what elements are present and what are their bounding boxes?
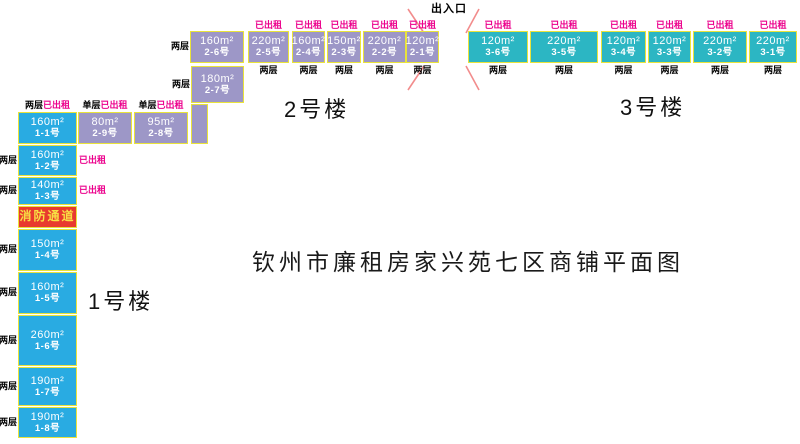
unit-area: 160m² <box>31 281 65 293</box>
floors-label: 单层 <box>138 100 156 110</box>
unit-area: 120m² <box>481 35 515 47</box>
floors-label: 两层 <box>259 65 277 76</box>
unit-number: 2-6号 <box>204 48 229 58</box>
fire-passage-box: 消防通道 <box>18 206 77 228</box>
floors-label: 两层 <box>375 65 393 76</box>
unit-box-2-9: 80m²2-9号 <box>78 112 132 144</box>
floors-label: 两层 <box>660 65 678 76</box>
unit-number: 1-8号 <box>35 424 60 434</box>
unit-box-3-4: 120m²3-4号 <box>601 31 646 63</box>
rented-label: 已出租 <box>371 20 398 31</box>
unit-number: 2-8号 <box>148 129 173 139</box>
unit-number: 1-4号 <box>35 251 60 261</box>
unit-area: 150m² <box>31 238 65 250</box>
rented-label: 已出租 <box>550 20 577 31</box>
unit-box-1-8: 190m²1-8号 <box>18 407 77 438</box>
rented-label: 已出租 <box>295 20 322 31</box>
floors-label: 两层 <box>299 65 317 76</box>
floor-plan: 出入口 160m²1-1号两层已出租160m²1-2号两层已出租140m²1-3… <box>0 0 800 444</box>
building-2-label: 2号楼 <box>284 92 349 124</box>
rented-label: 已出租 <box>409 20 436 31</box>
unit-box-1-4: 150m²1-4号 <box>18 229 77 271</box>
unit-area: 120m² <box>406 35 440 47</box>
unit-header-label: 两层已出租 <box>25 100 70 111</box>
unit-box-2-1: 120m²2-1号 <box>406 31 439 63</box>
unit-area: 220m² <box>547 35 581 47</box>
unit-number: 3-1号 <box>760 48 785 58</box>
unit-box-2-3: 150m²2-3号 <box>327 31 361 63</box>
unit-number: 3-4号 <box>611 48 636 58</box>
rented-label: 已出租 <box>79 185 106 196</box>
floors-label: 两层 <box>170 41 189 52</box>
rented-label: 已出租 <box>330 20 357 31</box>
unit-area: 120m² <box>607 35 641 47</box>
unit-box-3-1: 220m²3-1号 <box>749 31 797 63</box>
rented-label: 已出租 <box>101 100 128 110</box>
floors-label: 两层 <box>0 381 17 392</box>
unit-box-2-8: 95m²2-8号 <box>134 112 188 144</box>
unit-box-blank <box>191 104 208 144</box>
unit-box-1-6: 260m²1-6号 <box>18 315 77 366</box>
unit-box-2-4: 160m²2-4号 <box>292 31 325 63</box>
floors-label: 两层 <box>489 65 507 76</box>
rented-label: 已出租 <box>157 100 184 110</box>
rented-label: 已出租 <box>706 20 733 31</box>
floors-label: 两层 <box>614 65 632 76</box>
unit-area: 150m² <box>327 35 361 47</box>
unit-box-2-7: 180m²2-7号 <box>191 66 244 103</box>
unit-number: 2-2号 <box>372 48 397 58</box>
unit-box-1-2: 160m²1-2号 <box>18 145 77 176</box>
floors-label: 两层 <box>0 335 17 346</box>
unit-area: 140m² <box>31 179 65 191</box>
rented-label: 已出租 <box>43 100 70 110</box>
fire-passage-label: 消防通道 <box>19 210 75 223</box>
floors-label: 两层 <box>0 417 17 428</box>
unit-number: 2-7号 <box>205 86 230 96</box>
unit-box-2-2: 220m²2-2号 <box>363 31 406 63</box>
unit-box-2-5: 220m²2-5号 <box>248 31 289 63</box>
unit-box-2-6: 160m²2-6号 <box>190 31 244 63</box>
unit-number: 2-4号 <box>296 48 321 58</box>
rented-label: 已出租 <box>656 20 683 31</box>
unit-number: 3-3号 <box>657 48 682 58</box>
unit-area: 180m² <box>201 73 235 85</box>
unit-area: 220m² <box>756 35 790 47</box>
floors-label: 两层 <box>555 65 573 76</box>
unit-number: 2-9号 <box>92 129 117 139</box>
building-3-label: 3号楼 <box>620 90 685 122</box>
floors-label: 两层 <box>764 65 782 76</box>
unit-box-1-1: 160m²1-1号 <box>18 112 77 144</box>
unit-box-3-2: 220m²3-2号 <box>693 31 747 63</box>
unit-number: 1-7号 <box>35 388 60 398</box>
unit-area: 120m² <box>653 35 687 47</box>
unit-area: 160m² <box>200 35 234 47</box>
unit-number: 3-2号 <box>707 48 732 58</box>
building-1-label: 1号楼 <box>88 284 153 316</box>
unit-area: 160m² <box>31 149 65 161</box>
floors-label: 两层 <box>25 100 43 110</box>
unit-number: 2-5号 <box>256 48 281 58</box>
floors-label: 单层 <box>82 100 100 110</box>
rented-label: 已出租 <box>610 20 637 31</box>
rented-label: 已出租 <box>79 155 106 166</box>
floors-label: 两层 <box>171 79 190 90</box>
floors-label: 两层 <box>0 287 17 298</box>
unit-area: 220m² <box>703 35 737 47</box>
unit-number: 3-5号 <box>551 48 576 58</box>
rented-label: 已出租 <box>255 20 282 31</box>
unit-area: 160m² <box>31 116 65 128</box>
unit-area: 95m² <box>147 116 174 128</box>
unit-number: 3-6号 <box>485 48 510 58</box>
unit-number: 1-5号 <box>35 294 60 304</box>
unit-header-label: 单层已出租 <box>82 100 127 111</box>
unit-header-label: 单层已出租 <box>138 100 183 111</box>
page-title: 钦州市廉租房家兴苑七区商铺平面图 <box>252 243 684 277</box>
floors-label: 两层 <box>0 155 17 166</box>
unit-number: 1-1号 <box>35 129 60 139</box>
unit-area: 220m² <box>252 35 286 47</box>
unit-area: 160m² <box>292 35 326 47</box>
unit-number: 1-3号 <box>35 192 60 202</box>
floors-label: 两层 <box>413 65 431 76</box>
unit-area: 260m² <box>31 329 65 341</box>
floors-label: 两层 <box>711 65 729 76</box>
unit-area: 220m² <box>368 35 402 47</box>
unit-area: 190m² <box>31 375 65 387</box>
unit-box-1-5: 160m²1-5号 <box>18 272 77 314</box>
unit-box-3-3: 120m²3-3号 <box>648 31 691 63</box>
floors-label: 两层 <box>335 65 353 76</box>
rented-label: 已出租 <box>759 20 786 31</box>
unit-area: 190m² <box>31 411 65 423</box>
rented-label: 已出租 <box>484 20 511 31</box>
floors-label: 两层 <box>0 244 17 255</box>
unit-number: 2-3号 <box>331 48 356 58</box>
floors-label: 两层 <box>0 185 17 196</box>
unit-box-1-3: 140m²1-3号 <box>18 177 77 205</box>
unit-box-1-7: 190m²1-7号 <box>18 367 77 406</box>
unit-area: 80m² <box>91 116 118 128</box>
unit-number: 2-1号 <box>410 48 435 58</box>
unit-box-3-6: 120m²3-6号 <box>468 31 528 63</box>
unit-number: 1-6号 <box>35 342 60 352</box>
unit-number: 1-2号 <box>35 162 60 172</box>
unit-box-3-5: 220m²3-5号 <box>530 31 598 63</box>
